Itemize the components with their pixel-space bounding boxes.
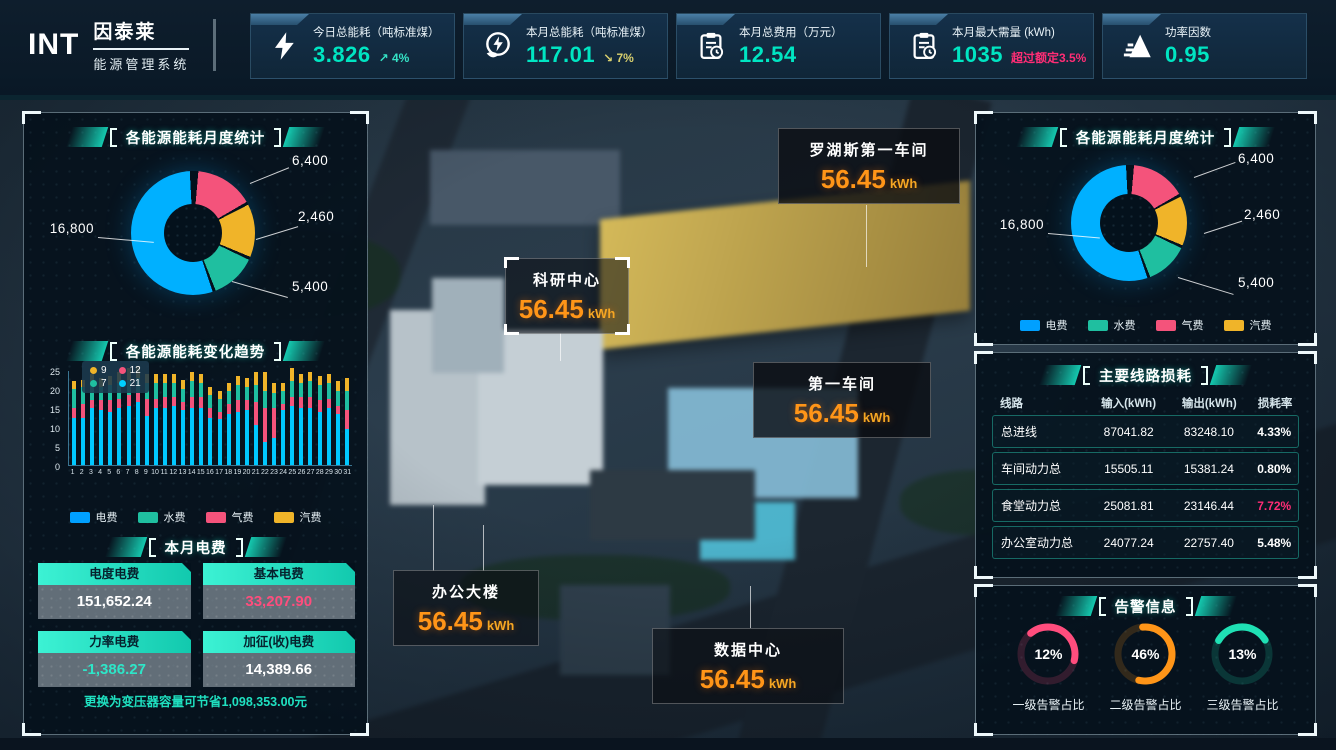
building-value: 56.45 — [794, 398, 859, 428]
bar-segment — [127, 406, 131, 465]
corner-accent — [1298, 333, 1317, 346]
legend-swatch — [1224, 320, 1244, 331]
kpi-trend: ↘ 7% — [603, 51, 634, 65]
gauge-label: 二级告警占比 — [1109, 696, 1181, 713]
bar-segment — [308, 397, 312, 408]
title-wing — [1039, 365, 1081, 385]
eco-energy-icon — [478, 30, 518, 62]
bracket-icon — [1224, 128, 1231, 147]
bar-segment — [308, 381, 312, 396]
bar-segment — [318, 376, 322, 386]
x-tick: 7 — [123, 469, 132, 476]
title-wing — [104, 537, 146, 557]
clipboard-clock-icon — [904, 31, 944, 61]
bar-segment — [272, 438, 276, 465]
bar-segment — [172, 406, 176, 465]
legend-label: 水费 — [164, 509, 186, 525]
legend-swatch — [1020, 320, 1040, 331]
leader-line — [1204, 221, 1242, 234]
title-wing — [283, 127, 325, 147]
section-title-line-loss: 主要线路损耗 — [976, 363, 1315, 387]
bar-segment — [154, 399, 158, 409]
corner-accent — [615, 257, 630, 268]
y-tick: 25 — [36, 367, 60, 377]
x-axis: 1234567891011121314151617181920212223242… — [68, 469, 352, 476]
fee-card-力率电费: 力率电费-1,386.27 — [38, 631, 191, 687]
bar-segment — [290, 368, 294, 381]
bar-segment — [336, 381, 340, 391]
kpi-label: 本月总能耗（吨标准煤） — [526, 24, 653, 40]
x-tick: 16 — [205, 469, 214, 476]
legend-item-电费[interactable]: 电费 — [1020, 317, 1068, 333]
x-tick: 21 — [251, 469, 260, 476]
building-unit: kWh — [863, 410, 890, 425]
corner-accent — [974, 584, 993, 597]
cell-line-name: 总进线 — [993, 423, 1090, 440]
x-tick: 25 — [288, 469, 297, 476]
donut-label: 2,460 — [1244, 207, 1280, 222]
alarm-gauge-三级告警占比: 13%三级告警占比 — [1206, 620, 1278, 713]
bar-segment — [254, 402, 258, 425]
alarm-panel: 告警信息 12%一级告警占比46%二级告警占比13%三级告警占比 — [975, 585, 1316, 735]
x-tick: 8 — [132, 469, 141, 476]
building-label-luohusi-workshop1[interactable]: 罗湖斯第一车间 56.45kWh — [778, 128, 960, 204]
bar-segment — [181, 410, 185, 465]
table-row-办公室动力总: 办公室动力总24077.2422757.405.48% — [992, 526, 1299, 559]
bar-segment — [299, 397, 303, 408]
title-wing — [1016, 127, 1058, 147]
gauge-ring: 12% — [1014, 620, 1082, 688]
energy-dashboard: 罗湖斯第一车间 56.45kWh 科研中心 56.45kWh 第一车间 56.4… — [0, 0, 1336, 750]
bar-segment — [99, 400, 103, 410]
bar-segment — [163, 397, 167, 408]
corner-accent — [974, 351, 993, 364]
bracket-icon — [110, 128, 117, 147]
x-tick: 30 — [334, 469, 343, 476]
legend-swatch — [206, 512, 226, 523]
tooltip-item: 21 — [119, 378, 141, 389]
bar-segment — [272, 383, 276, 393]
bar-segment — [199, 397, 203, 408]
donut-legend: 电费水费气费汽费 — [976, 317, 1315, 333]
bar-segment — [172, 383, 176, 396]
bar-segment — [108, 400, 112, 411]
bracket-icon — [1186, 597, 1193, 616]
fee-card-header: 加征(收)电费 — [203, 631, 356, 653]
stacked-bar-day-1 — [72, 381, 76, 465]
stacked-bar-day-18 — [227, 383, 231, 465]
kpi-trend: ↗ 4% — [379, 51, 410, 65]
legend-label: 气费 — [1182, 317, 1204, 333]
corner-accent — [22, 111, 41, 124]
trend-legend: 电费水费气费汽费 — [24, 509, 367, 525]
legend-swatch — [1156, 320, 1176, 331]
leader-line — [256, 226, 298, 240]
tooltip-dot — [119, 380, 126, 387]
building-unit: kWh — [890, 176, 917, 191]
building-value: 56.45 — [821, 164, 886, 194]
x-tick: 23 — [269, 469, 278, 476]
legend-item-气费[interactable]: 气费 — [206, 509, 254, 525]
legend-item-水费[interactable]: 水费 — [1088, 317, 1136, 333]
bar-segment — [236, 376, 240, 386]
logo-text: INT — [28, 28, 79, 62]
building-name: 罗湖斯第一车间 — [785, 139, 953, 160]
stacked-bar-day-15 — [199, 374, 203, 465]
cell-input: 25081.81 — [1090, 499, 1167, 513]
cell-output: 83248.10 — [1167, 425, 1250, 439]
kpi-trend: 超过额定3.5% — [1011, 49, 1086, 66]
gauge-value: 46% — [1111, 620, 1179, 688]
bar-segment — [199, 374, 203, 384]
bar-segment — [227, 414, 231, 465]
bar-segment — [299, 374, 303, 384]
corner-accent — [974, 111, 993, 124]
bar-segment — [318, 400, 322, 411]
stacked-bar-day-27 — [308, 372, 312, 465]
cell-input: 24077.24 — [1090, 536, 1167, 550]
bar-segment — [154, 408, 158, 465]
kpi-value: 117.01 — [526, 42, 595, 68]
stacked-bar-day-14 — [190, 372, 194, 465]
bar-segment — [72, 408, 76, 418]
stacked-bar-day-21 — [254, 372, 258, 465]
kpi-card: 本月最大需量 (kWh)1035超过额定3.5% — [889, 13, 1094, 79]
x-tick: 17 — [215, 469, 224, 476]
bar-segment — [299, 408, 303, 465]
bracket-icon — [274, 128, 281, 147]
donut-label: 6,400 — [292, 153, 328, 168]
stacked-bar-day-11 — [163, 374, 167, 465]
bar-segment — [254, 385, 258, 402]
bar-segment — [227, 383, 231, 391]
stacked-bar-day-12 — [172, 374, 176, 465]
fee-card-value: 151,652.24 — [38, 585, 191, 619]
bar-segment — [218, 412, 222, 420]
leader-line — [866, 205, 867, 267]
corner-accent — [974, 566, 993, 579]
legend-item-气费[interactable]: 气费 — [1156, 317, 1204, 333]
bar-segment — [308, 372, 312, 382]
col-header-input: 输入(kWh) — [1090, 395, 1168, 411]
bar-segment — [263, 408, 267, 442]
bar-segment — [318, 412, 322, 465]
legend-label: 电费 — [1046, 317, 1068, 333]
x-tick: 12 — [169, 469, 178, 476]
building-label-workshop1[interactable]: 第一车间 56.45kWh — [753, 362, 931, 438]
bar-segment — [345, 391, 349, 410]
corner-notch — [1103, 14, 1161, 25]
x-tick: 24 — [279, 469, 288, 476]
bar-segment — [190, 408, 194, 465]
stacked-bar-day-23 — [272, 383, 276, 465]
tooltip-dot — [90, 380, 97, 387]
corner-accent — [22, 723, 41, 736]
leader-line — [232, 281, 288, 298]
fee-card-header: 电度电费 — [38, 563, 191, 585]
bar-segment — [327, 374, 331, 384]
bar-segment — [290, 406, 294, 465]
stacked-bar-day-28 — [318, 376, 322, 465]
fee-card-value: 33,207.90 — [203, 585, 356, 619]
stacked-bar-day-31 — [345, 378, 349, 465]
building-label-data-center[interactable]: 数据中心 56.45kWh — [652, 628, 844, 704]
corner-accent — [1298, 351, 1317, 364]
kpi-card: 本月总费用（万元）12.54 — [676, 13, 881, 79]
cell-line-name: 车间动力总 — [993, 460, 1090, 477]
legend-item-电费[interactable]: 电费 — [70, 509, 118, 525]
bar-segment — [72, 381, 76, 389]
bar-segment — [208, 408, 212, 418]
leader-line — [1178, 277, 1234, 295]
fee-card-header: 力率电费 — [38, 631, 191, 653]
x-tick: 31 — [343, 469, 352, 476]
bar-segment — [308, 408, 312, 465]
leader-line — [1194, 162, 1236, 178]
stacked-bar-day-19 — [236, 376, 240, 465]
kpi-label: 今日总能耗（吨标准煤） — [313, 24, 440, 40]
x-tick: 28 — [315, 469, 324, 476]
cell-output: 15381.24 — [1167, 462, 1250, 476]
bar-segment — [263, 442, 267, 465]
bar-segment — [218, 391, 222, 399]
leader-line — [750, 586, 751, 628]
bar-segment — [218, 399, 222, 412]
bracket-icon — [1083, 366, 1090, 385]
alarm-gauge-二级告警占比: 46%二级告警占比 — [1109, 620, 1181, 713]
donut-label: 5,400 — [292, 279, 328, 294]
legend-swatch — [138, 512, 158, 523]
bracket-icon — [1201, 366, 1208, 385]
kpi-card: 本月总能耗（吨标准煤）117.01↘ 7% — [463, 13, 668, 79]
stacked-bar-day-13 — [181, 380, 185, 465]
x-tick: 22 — [260, 469, 269, 476]
section-title-energy-trend: 各能源能耗变化趋势 — [24, 339, 367, 363]
kpi-card: 今日总能耗（吨标准煤）3.826↗ 4% — [250, 13, 455, 79]
corner-accent — [974, 333, 993, 346]
tooltip-dot — [119, 367, 126, 374]
bar-segment — [245, 387, 249, 400]
building-name: 办公大楼 — [400, 581, 532, 602]
bar-segment — [172, 397, 176, 407]
stacked-bar-day-10 — [154, 374, 158, 465]
bar-segment — [281, 383, 285, 391]
legend-item-汽费[interactable]: 汽费 — [274, 509, 322, 525]
bar-segment — [145, 399, 149, 416]
bar-segment — [327, 408, 331, 465]
x-tick: 26 — [297, 469, 306, 476]
bar-segment — [117, 399, 121, 409]
x-tick: 3 — [86, 469, 95, 476]
kpi-label: 本月总费用（万元） — [739, 24, 843, 40]
x-tick: 6 — [114, 469, 123, 476]
bar-segment — [245, 400, 249, 410]
table-row-车间动力总: 车间动力总15505.1115381.240.80% — [992, 452, 1299, 485]
legend-swatch — [274, 512, 294, 523]
col-header-line: 线路 — [992, 395, 1090, 411]
donut-label: 16,800 — [42, 221, 94, 236]
bar-segment — [336, 406, 340, 414]
legend-label: 水费 — [1114, 317, 1136, 333]
section-title-monthly-energy: 各能源能耗月度统计 — [976, 125, 1315, 149]
bar-segment — [336, 414, 340, 465]
bar-segment — [172, 374, 176, 384]
gauge-ring: 46% — [1111, 620, 1179, 688]
corner-accent — [504, 257, 519, 268]
bar-segment — [345, 410, 349, 429]
bar-segment — [208, 395, 212, 408]
legend-label: 电费 — [96, 509, 118, 525]
title-wing — [66, 341, 108, 361]
tooltip-item: 12 — [119, 365, 141, 376]
donut-label: 5,400 — [1238, 275, 1274, 290]
building-unit: kWh — [487, 618, 514, 633]
bar-segment — [163, 408, 167, 465]
bar-segment — [318, 385, 322, 400]
brand-logo: INT 因泰莱 能源管理系统 — [28, 17, 216, 73]
building-value: 56.45 — [519, 294, 584, 324]
tooltip-dot — [90, 367, 97, 374]
gauge-label: 一级告警占比 — [1012, 696, 1084, 713]
bar-segment — [245, 378, 249, 388]
fee-card-加征(收)电费: 加征(收)电费14,389.66 — [203, 631, 356, 687]
building-name: 第一车间 — [760, 373, 924, 394]
legend-item-水费[interactable]: 水费 — [138, 509, 186, 525]
stacked-bar-day-24 — [281, 383, 285, 465]
bar-segment — [272, 393, 276, 408]
bar-segment — [236, 385, 240, 400]
chart-tooltip: 912721 — [82, 361, 149, 393]
cell-output: 23146.44 — [1167, 499, 1250, 513]
bar-segment — [327, 383, 331, 398]
bracket-icon — [149, 538, 156, 557]
stacked-bar-day-30 — [336, 381, 340, 465]
building-value: 56.45 — [418, 606, 483, 636]
cell-line-name: 办公室动力总 — [993, 534, 1090, 551]
donut-label: 16,800 — [992, 217, 1044, 232]
donut-hole — [1100, 194, 1158, 252]
legend-swatch — [1088, 320, 1108, 331]
kpi-cards: 今日总能耗（吨标准煤）3.826↗ 4%本月总能耗（吨标准煤）117.01↘ 7… — [250, 13, 1307, 79]
corner-notch — [464, 14, 522, 25]
fee-card-header: 基本电费 — [203, 563, 356, 585]
fee-card-value: -1,386.27 — [38, 653, 191, 687]
energy-donut-chart — [131, 171, 255, 295]
energy-trend-chart: 2520151050 12345678910111213141516171819… — [36, 363, 358, 503]
building-unit: kWh — [769, 676, 796, 691]
bar-segment — [136, 393, 140, 403]
bar-segment — [154, 374, 158, 384]
corner-accent — [1298, 111, 1317, 124]
bar-segment — [199, 408, 203, 465]
bar-segment — [127, 395, 131, 406]
bar-segment — [208, 387, 212, 395]
corner-notch — [251, 14, 309, 25]
bar-segment — [227, 391, 231, 404]
power-factor-icon — [1117, 31, 1157, 61]
legend-item-汽费[interactable]: 汽费 — [1224, 317, 1272, 333]
table-row-食堂动力总: 食堂动力总25081.8123146.447.72% — [992, 489, 1299, 522]
bar-segment — [208, 418, 212, 466]
title-wing — [1210, 365, 1252, 385]
kpi-label: 功率因数 — [1165, 24, 1211, 40]
brand-subtitle: 能源管理系统 — [93, 54, 189, 73]
bar-segment — [99, 410, 103, 465]
bracket-icon — [236, 538, 243, 557]
title-wing — [1233, 127, 1275, 147]
building-label-research-center[interactable]: 科研中心 56.45kWh — [505, 258, 629, 334]
donut-label: 6,400 — [1238, 151, 1274, 166]
clipboard-clock-icon — [691, 31, 731, 61]
bar-segment — [336, 391, 340, 406]
gauge-value: 12% — [1014, 620, 1082, 688]
x-tick: 18 — [224, 469, 233, 476]
col-header-output: 输出(kWh) — [1167, 395, 1251, 411]
x-tick: 2 — [77, 469, 86, 476]
bar-segment — [190, 381, 194, 396]
fee-card-电度电费: 电度电费151,652.24 — [38, 563, 191, 619]
leader-line — [250, 167, 289, 184]
bar-segment — [218, 419, 222, 465]
corner-notch — [677, 14, 735, 25]
legend-label: 汽费 — [300, 509, 322, 525]
x-tick: 19 — [233, 469, 242, 476]
table-body: 总进线87041.8283248.104.33%车间动力总15505.11153… — [992, 415, 1299, 559]
fee-cards: 电度电费151,652.24基本电费33,207.90力率电费-1,386.27… — [38, 563, 355, 687]
bracket-icon — [1099, 597, 1106, 616]
kpi-value: 0.95 — [1165, 42, 1210, 68]
bar-segment — [90, 408, 94, 465]
bar-segment — [190, 372, 194, 382]
top-header: INT 因泰莱 能源管理系统 今日总能耗（吨标准煤）3.826↗ 4%本月总能耗… — [0, 0, 1336, 100]
bar-segment — [199, 383, 203, 396]
bar-segment — [254, 425, 258, 465]
left-panel: 各能源能耗月度统计 16,800 6,400 2,460 5,400 各能源能耗… — [23, 112, 368, 735]
bar-segment — [181, 389, 185, 402]
tooltip-item: 9 — [90, 365, 107, 376]
kpi-value: 12.54 — [739, 42, 797, 68]
x-tick: 4 — [95, 469, 104, 476]
stacked-bar-day-17 — [218, 391, 222, 465]
title-wing — [1194, 596, 1236, 616]
corner-accent — [350, 111, 369, 124]
section-title-monthly-energy: 各能源能耗月度统计 — [24, 125, 367, 149]
y-tick: 5 — [36, 443, 60, 453]
corner-accent — [615, 324, 630, 335]
x-tick: 10 — [150, 469, 159, 476]
corner-accent — [1298, 566, 1317, 579]
table-header: 线路 输入(kWh) 输出(kWh) 损耗率 — [992, 395, 1299, 411]
kpi-card: 功率因数0.95 — [1102, 13, 1307, 79]
bar-segment — [181, 380, 185, 390]
bar-segment — [108, 412, 112, 465]
title-wing — [244, 537, 286, 557]
right-donut-panel: 各能源能耗月度统计 16,800 6,400 2,460 5,400 电费水费气… — [975, 112, 1316, 345]
x-tick: 11 — [160, 469, 169, 476]
savings-note: 更换为变压器容量可节省1,098,353.00元 — [24, 691, 367, 710]
x-tick: 29 — [324, 469, 333, 476]
bracket-icon — [1060, 128, 1067, 147]
building-label-office-building[interactable]: 办公大楼 56.45kWh — [393, 570, 539, 646]
bar-segment — [117, 408, 121, 465]
corner-accent — [1298, 723, 1317, 736]
y-tick: 10 — [36, 424, 60, 434]
bar-segment — [163, 383, 167, 396]
corner-accent — [974, 723, 993, 736]
title-wing — [283, 341, 325, 361]
table-row-总进线: 总进线87041.8283248.104.33% — [992, 415, 1299, 448]
section-title-alarms: 告警信息 — [976, 594, 1315, 618]
